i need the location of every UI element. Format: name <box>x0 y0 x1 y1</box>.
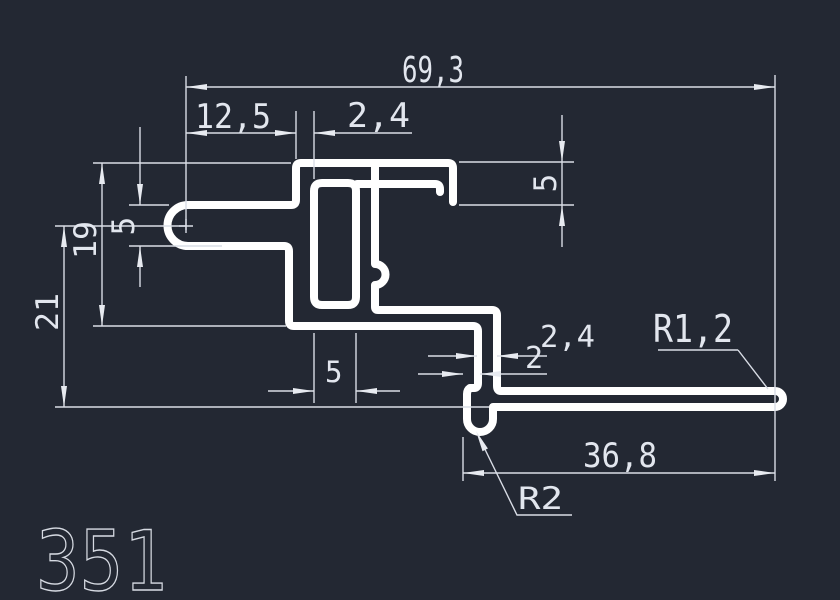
dim-cap-offset-label: 12,5 <box>195 97 271 137</box>
part-number-label: 351 <box>36 513 167 600</box>
dim-height-21-label: 21 <box>30 293 66 331</box>
callout-end-radius-label: R1,2 <box>653 307 733 351</box>
dim-top-wall-label: 2,4 <box>347 96 410 136</box>
dim-lower-gap-label: 2 <box>525 341 543 376</box>
callout-hook-radius-label: R2 <box>518 481 563 517</box>
dim-left-arm-thickness-label: 5 <box>106 217 142 236</box>
dim-lower-wall-label: 2,4 <box>540 320 595 355</box>
cad-drawing: 69,3 12,5 2,4 5 5 19 21 <box>0 0 840 600</box>
dim-arm-length-label: 36,8 <box>583 436 657 476</box>
dim-overall-width-label: 69,3 <box>402 50 464 91</box>
dim-right-lip-depth-label: 5 <box>528 174 564 193</box>
dim-slot-width-label: 5 <box>325 355 342 389</box>
dim-height-19-label: 19 <box>68 221 104 259</box>
drawing-canvas: 69,3 12,5 2,4 5 5 19 21 <box>0 0 840 600</box>
